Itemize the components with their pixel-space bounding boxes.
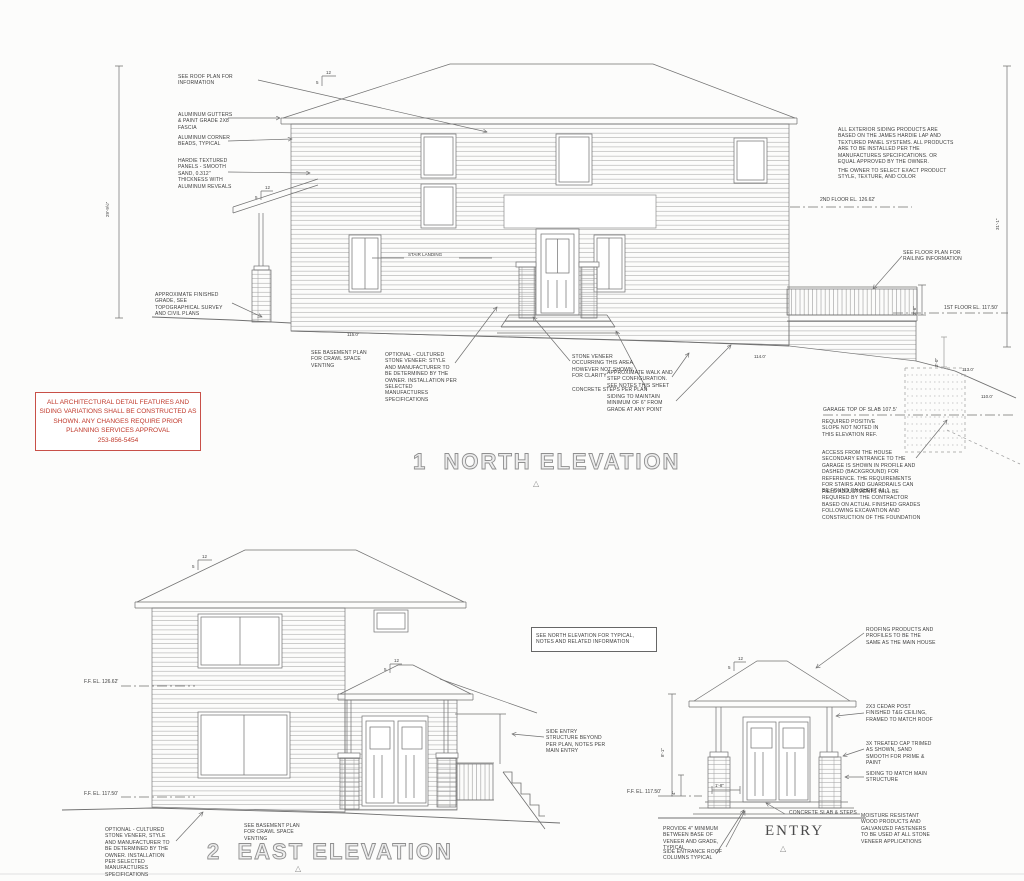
slope-run-label: 12 — [738, 656, 744, 661]
slope-rise-label: 5 — [384, 667, 387, 672]
elevation-marker-icon: △ — [780, 844, 786, 853]
east-elevation-number: 2 — [207, 839, 221, 864]
elevation-marker-icon: △ — [295, 864, 301, 873]
label-ff-upper: F.F. EL. 126.62' — [84, 679, 118, 685]
note-treated-cap: 3X TREATED CAP TRIMED AS SHOWN, SAND SMO… — [866, 741, 936, 767]
note-siding-match: SIDING TO MATCH MAIN STRUCTURE — [866, 771, 928, 784]
note-field-adjustments: FIELD ADJUSTMENTS WILL BE REQUIRED BY TH… — [822, 489, 922, 521]
entry-doors — [743, 717, 810, 802]
note-cedar-post: 2X3 CEDAR POST FINISHED T&G CEILING, FRA… — [866, 704, 934, 723]
slope-run-label: 12 — [202, 554, 208, 559]
note-finished-grade: APPROXIMATE FINISHED GRADE, SEE TOPOGRAP… — [155, 292, 233, 318]
entry-detail-title: ENTRY — [765, 823, 824, 840]
north-roof — [281, 64, 797, 124]
east-elevation-title: 2 EAST ELEVATION — [207, 839, 453, 865]
note-side-entry: SIDE ENTRY STRUCTURE BEYOND PER PLAN, NO… — [546, 729, 608, 755]
slope-rise-label: 5 — [192, 564, 195, 569]
slope-run-label: 12 — [394, 658, 400, 663]
north-elevation-number: 1 — [413, 449, 427, 474]
slope-run-label: 12 — [326, 70, 332, 75]
note-roof-columns: SIDE ENTRANCE ROOF COLUMNS TYPICAL — [663, 849, 723, 862]
north-garage-dashed — [905, 337, 1020, 464]
note-positive-slope: REQUIRED POSITIVE SLOPE NOT NOTED IN THI… — [822, 419, 882, 438]
note-basement-venting: SEE BASEMENT PLAN FOR CRAWL SPACE VENTIN… — [311, 350, 373, 369]
note-moisture-resistant: MOISTURE RESISTANT WOOD PRODUCTS AND GAL… — [861, 813, 931, 845]
grade-110: 110.0' — [981, 394, 993, 399]
north-deck-railing — [787, 287, 917, 361]
entry-slope-marker: 12 5 — [728, 656, 746, 671]
note-cultured-stone: OPTIONAL - CULTURED STONE VENEER: STYLE … — [385, 352, 457, 403]
dim-garage: 3'-0" — [934, 358, 939, 367]
note-box-north-ref: SEE NORTH ELEVATION FOR TYPICAL, NOTES A… — [531, 627, 657, 652]
slope-rise-label: 5 — [316, 80, 319, 85]
north-elevation-title: 1 NORTH ELEVATION — [413, 449, 680, 475]
dim-right-height: 31'-1" — [995, 219, 1000, 230]
slope-rise-label: 5 — [728, 665, 731, 670]
note-owner-select: THE OWNER TO SELECT EXACT PRODUCT STYLE,… — [838, 168, 948, 181]
note-cultured-stone-east: OPTIONAL - CULTURED STONE VENEER, STYLE … — [105, 827, 171, 878]
dim-veneer-min: 4" — [671, 791, 676, 795]
dim-left-height: 29'-9½" — [105, 202, 110, 217]
dim-entry-base: 1'-8" — [715, 783, 724, 788]
dim-entry-height: 8'-1" — [660, 748, 665, 757]
north-elevation-name: NORTH ELEVATION — [443, 449, 680, 474]
note-hardie-panels: HARDIE TEXTURED PANELS - SMOOTH SAND, 0.… — [178, 158, 242, 190]
note-walk-step: APPROXIMATE WALK AND STEP CONFIGURATION.… — [607, 370, 675, 389]
label-ff-lower: F.F. EL. 117.50' — [84, 791, 118, 797]
stamp-phone: 253-856-5454 — [39, 436, 197, 445]
note-slab-steps: CONCRETE SLAB & STEPS — [789, 810, 857, 816]
planning-approval-stamp: ALL ARCHITECTURAL DETAIL FEATURES AND SI… — [35, 392, 201, 451]
entry-roof — [689, 661, 856, 707]
note-siding-grade: SIDING TO MAINTAIN MINIMUM OF 6" FROM GR… — [607, 394, 675, 413]
note-veneer-grade: PROVIDE 4" MINIMUM BETWEEN BASE OF VENEE… — [663, 826, 729, 852]
note-north-ref: SEE NORTH ELEVATION FOR TYPICAL, NOTES A… — [536, 633, 652, 646]
elevation-sheet: { "colors": { "stamp_red": "#c0392b", "l… — [0, 0, 1024, 881]
grade-115: 115.0' — [347, 332, 359, 337]
grade-113: 113.0' — [962, 367, 974, 372]
slope-run-label: 12 — [265, 185, 271, 190]
label-first-floor-el: 1ST FLOOR EL. 117.50' — [944, 305, 998, 311]
label-second-floor-el: 2ND FLOOR EL. 126.62' — [820, 197, 875, 203]
label-ff-entry: F.F. EL. 117.50' — [627, 789, 661, 795]
grade-114: 114.0' — [754, 354, 766, 359]
note-roof-plan: SEE ROOF PLAN FOR INFORMATION — [178, 74, 240, 87]
east-roof — [135, 550, 466, 608]
east-elevation-name: EAST ELEVATION — [237, 839, 452, 864]
note-garage-slab: GARAGE TOP OF SLAB 107.5' — [823, 407, 897, 413]
stamp-text: ALL ARCHITECTURAL DETAIL FEATURES AND SI… — [39, 398, 197, 436]
note-siding-products: ALL EXTERIOR SIDING PRODUCTS ARE BASED O… — [838, 127, 956, 165]
elevation-marker-icon: △ — [533, 479, 539, 488]
note-gutters: ALUMINUM GUTTERS & PAINT GRADE 2X8 FASCI… — [178, 112, 236, 131]
note-corner-beads: ALUMINUM CORNER BEADS, TYPICAL — [178, 135, 238, 148]
note-roofing-products: ROOFING PRODUCTS AND PROFILES TO BE THE … — [866, 627, 936, 646]
dim-deck-rail: 3'-6" — [912, 306, 917, 315]
label-stair-landing: STAIR LANDING — [408, 252, 442, 257]
note-railing-info: SEE FLOOR PLAN FOR RAILING INFORMATION — [903, 250, 983, 263]
